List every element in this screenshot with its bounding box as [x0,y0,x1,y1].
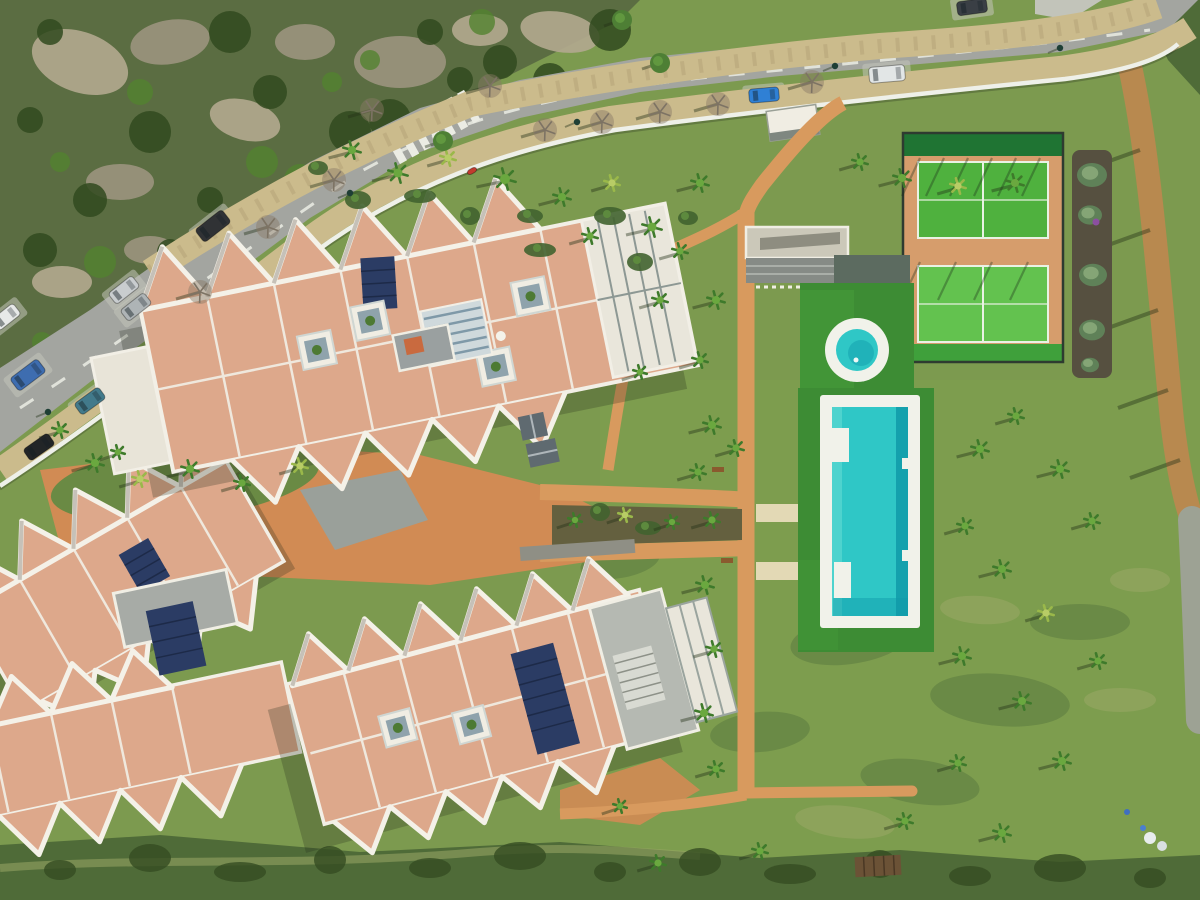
entrance-ramp [746,227,848,258]
debris [1124,809,1130,815]
hill-bush [127,79,153,105]
garden-shrub [404,189,436,203]
scrub-bush [594,862,626,882]
garden-bed [1072,150,1112,378]
aerial-photo [0,0,1200,900]
hill-bush [447,67,473,93]
hill-bush [84,246,116,278]
pergola-roof [746,255,910,287]
hill-bush [129,111,171,153]
hill-bush [73,183,107,217]
debris [1157,841,1167,851]
pool-connector-1 [756,504,804,522]
court-top-band [903,133,1063,156]
hill-bush [417,19,443,45]
scrub-bush [764,864,816,884]
scrub-bush [314,846,346,874]
hill-bush [209,11,251,53]
bench [712,467,724,472]
path-fork-upper [540,492,752,500]
blue-car [748,87,779,104]
pool-steps-bottom [834,562,851,598]
garden-shrub [517,209,543,223]
pool-ladder [902,550,909,561]
court-bottom-band [903,344,1063,362]
white-van [868,64,905,83]
purple-flowers [1093,219,1100,226]
hill-bush [360,50,380,70]
scrub-bush [409,858,451,878]
pool-connector-2 [756,562,804,580]
rock [275,24,335,60]
bed-bush [1079,264,1107,286]
garden-shrub [627,253,653,271]
wood-pallet [855,855,902,877]
hill-bush [37,19,63,45]
bed-bush [1077,163,1107,187]
hill-bush [483,45,517,79]
garden-shrub [460,207,480,225]
debris [1144,832,1156,844]
scrub-bush [129,844,171,872]
bed-bush [1081,358,1099,372]
hill-bush [17,107,43,133]
meadow-patch [1110,568,1170,592]
round-pool [825,318,889,382]
hill-bush [50,152,70,172]
shed-roof [834,255,910,283]
garden-shrub [594,207,626,225]
scrub-bush [679,848,721,876]
scrub-bush [494,842,546,870]
gravel-trail [1192,520,1200,720]
pool-steps-top [832,428,849,462]
hill-bush [469,9,495,35]
padel-courts [902,133,1063,362]
debris [1140,825,1146,831]
scrub-bush [1034,854,1086,882]
scrub-bush [214,862,266,882]
path-branch-right [746,791,912,793]
scrub-bush [1134,868,1166,888]
hill-bush [23,233,57,267]
hill-bush [246,146,278,178]
bench [721,558,733,563]
main-pool [820,395,920,628]
hill-bush [253,75,287,109]
hill-bush [322,72,342,92]
garden-shrub [590,503,610,521]
bed-bush [1079,320,1105,341]
meadow-patch [1084,688,1156,712]
scrub-bush [949,866,991,886]
pool-area [798,283,934,652]
garden-shrub [524,243,556,257]
rock [32,266,92,298]
garden-shrub [678,211,698,225]
pool-ladder [902,458,909,469]
scrub-bush [44,860,76,880]
